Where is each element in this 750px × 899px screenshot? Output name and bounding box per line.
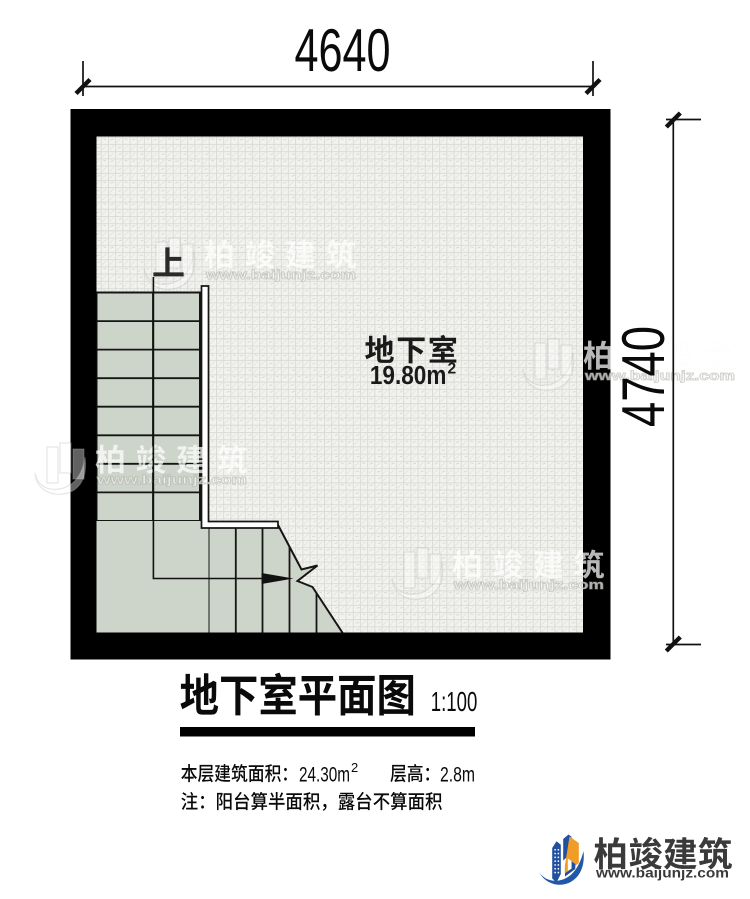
svg-text:2: 2 <box>351 760 358 775</box>
svg-text:2.8m: 2.8m <box>440 764 475 787</box>
svg-text:24.30m: 24.30m <box>299 764 350 787</box>
svg-text:www.baijunjz.com: www.baijunjz.com <box>453 578 604 592</box>
svg-text:1:100: 1:100 <box>431 686 478 717</box>
svg-text:www.baijunjz.com: www.baijunjz.com <box>205 268 356 282</box>
svg-text:4640: 4640 <box>295 17 391 84</box>
svg-text:2: 2 <box>448 361 457 378</box>
svg-text:4740: 4740 <box>610 326 677 427</box>
svg-text:www.baijunjz.com: www.baijunjz.com <box>96 473 247 487</box>
svg-text:19.80m: 19.80m <box>370 362 447 390</box>
svg-text:www.baijunjz.com: www.baijunjz.com <box>595 866 729 881</box>
